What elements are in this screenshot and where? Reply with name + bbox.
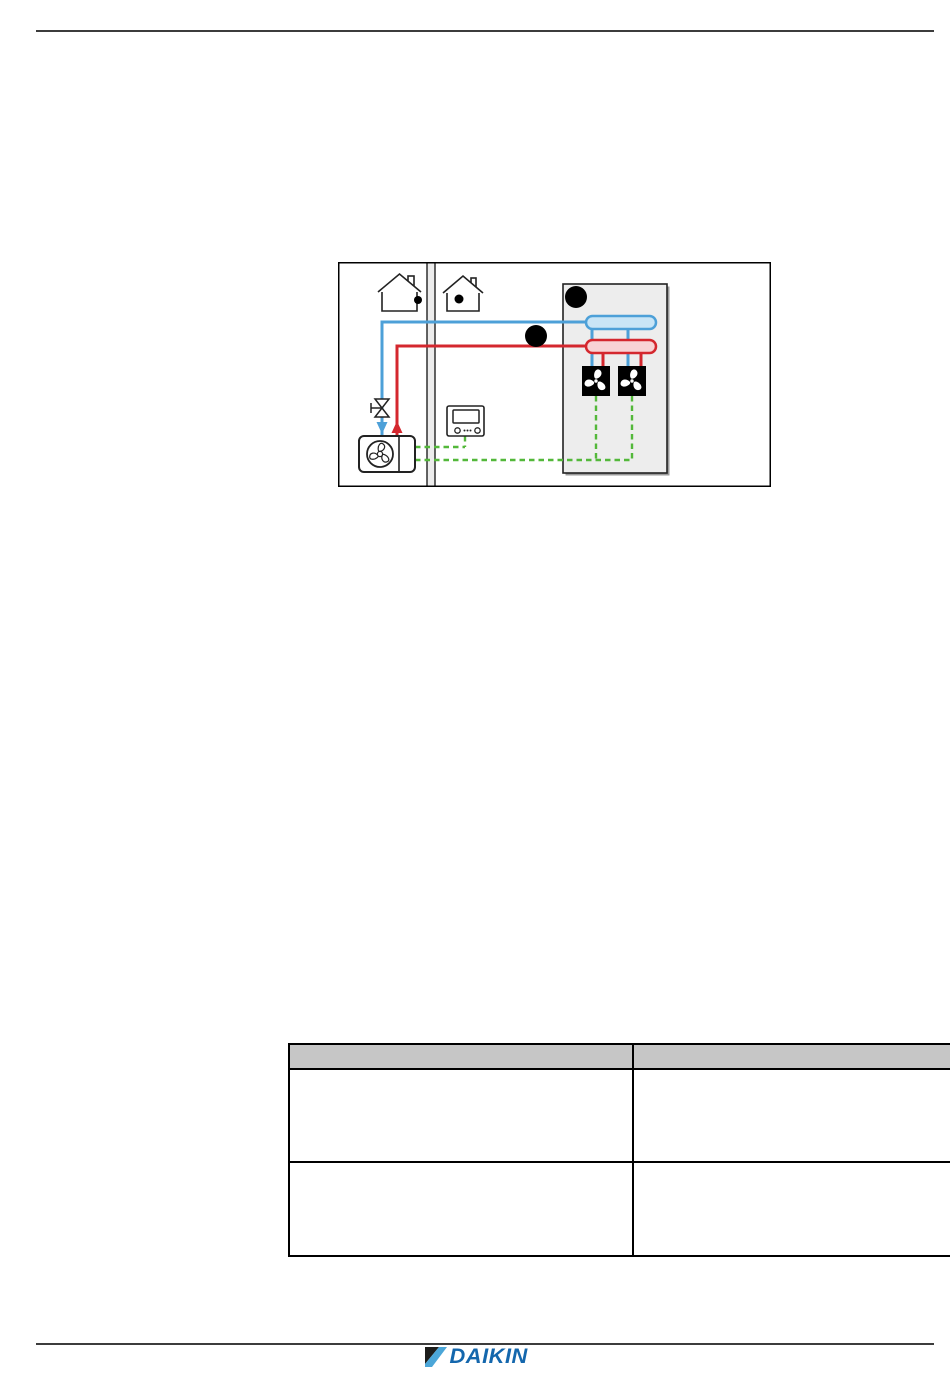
indoor-zone-box [563, 284, 670, 476]
manual-page: DAIKIN [0, 0, 950, 1387]
dot-marker [455, 295, 464, 304]
table-header-row [289, 1044, 950, 1069]
table-cell [633, 1069, 950, 1162]
dot-marker [414, 296, 422, 304]
fan-coil-unit-icon [582, 366, 610, 396]
house-outdoor-icon [378, 274, 422, 311]
daikin-mark-icon [424, 1347, 448, 1367]
table-header-cell [633, 1044, 950, 1069]
house-indoor-icon [443, 276, 483, 311]
table-cell [289, 1069, 633, 1162]
return-header [586, 340, 656, 353]
table-cell [289, 1162, 633, 1256]
room-controller-icon [447, 406, 484, 436]
spec-table [288, 1043, 950, 1257]
outdoor-unit-icon [359, 436, 415, 472]
shutoff-valve-icon [371, 399, 389, 417]
fan-icon [367, 441, 393, 467]
table-header-cell [289, 1044, 633, 1069]
fan-coil-unit-icon [618, 366, 646, 396]
connector-node-b [525, 325, 547, 347]
table-row [289, 1162, 950, 1256]
header-rule [36, 30, 934, 32]
table-row [289, 1069, 950, 1162]
brand-logo-text: DAIKIN [449, 1347, 527, 1367]
system-diagram-figure [338, 262, 771, 487]
brand-logo: DAIKIN [0, 1347, 950, 1367]
partition-wall [427, 264, 435, 486]
supply-header [586, 316, 656, 329]
connector-node-a [565, 286, 587, 308]
table-cell [633, 1162, 950, 1256]
